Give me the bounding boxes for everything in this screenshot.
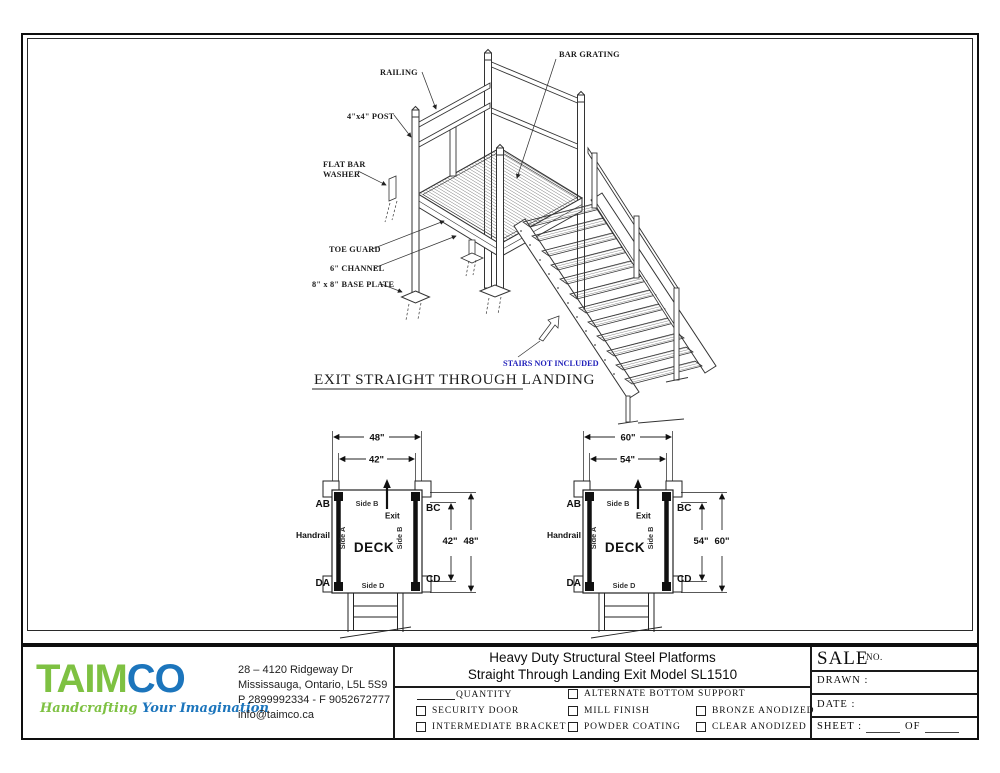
option-security-door: SECURITY DOOR [416,704,519,717]
exit-label: Exit [385,512,400,521]
company-logo: TAIMCO [36,658,185,700]
dim-inner-width: 42" [369,455,384,466]
dim-outer-height: 60" [714,536,729,547]
corner-bc: BC [677,503,691,514]
address-line: P 2899992334 - F 9052672777 [238,693,390,708]
checkbox-icon [568,722,578,732]
option-label: QUANTITY [456,690,512,700]
corner-bc: BC [426,503,440,514]
company-address: 28 – 4120 Ridgeway Dr Mississauga, Ontar… [238,663,390,723]
option-label: POWDER COATING [584,722,681,732]
label-railing: RAILING [380,68,418,77]
address-line: 28 – 4120 Ridgeway Dr [238,663,390,678]
checkbox-icon [568,689,578,699]
address-line: Mississauga, Ontario, L5L 5S9 [238,678,390,693]
of-label: OF [905,721,920,732]
handrail-label: Handrail [547,530,581,540]
option-label: SECURITY DOOR [432,706,519,716]
quantity-blank-line [417,690,455,700]
dim-inner-height: 42" [442,536,457,547]
sheet-label: SHEET : [817,721,862,732]
option-mill-finish: MILL FINISH [568,704,650,717]
option-alternate-bottom-support: ALTERNATE BOTTOM SUPPORT [568,687,745,700]
dim-inner-width: 54" [620,455,635,466]
sheet-number-blank [866,732,900,733]
sale-label: SALE [817,648,869,670]
sale-panel-divider [811,670,977,672]
base-plate [402,291,430,303]
railing-rails [419,83,490,127]
side-left-label: Side A [589,526,598,549]
option-quantity: QUANTITY [417,688,512,701]
option-label: CLEAR ANODIZED [712,722,807,732]
logo-tagline: Handcrafting Your Imagination [40,701,269,716]
label-toe-guard: TOE GUARD [329,245,381,254]
side-top-label: Side B [607,499,630,508]
email: info@taimco.ca [238,708,390,723]
flat-bar-washer [389,176,396,201]
dim-inner-height: 54" [693,536,708,547]
corner-da: DA [567,578,581,589]
sheet-title-line1: Heavy Duty Structural Steel Platforms [395,649,810,666]
label-bar-grating: BAR GRATING [559,50,620,59]
label-channel: 6" CHANNEL [330,264,385,273]
handrail-label: Handrail [296,530,330,540]
drawn-label: DRAWN : [817,675,868,686]
checkbox-icon [568,706,578,716]
option-powder-coating: POWDER COATING [568,720,681,733]
deck-label: DECK [605,540,645,555]
sale-no-label: NO. [866,652,883,662]
corner-da: DA [316,578,330,589]
option-bronze-anodized: BRONZE ANODIZED [696,704,814,717]
sheet-title-line2: Straight Through Landing Exit Model SL15… [395,666,810,683]
sheet-total-blank [925,732,959,733]
stair-tail [599,593,654,632]
label-flat-bar: FLAT BAR [323,160,366,169]
exit-label: Exit [636,512,651,521]
option-label: ALTERNATE BOTTOM SUPPORT [584,689,745,699]
checkbox-icon [416,722,426,732]
dim-outer-width: 60" [620,433,635,444]
date-label: DATE : [817,699,855,710]
stair-tail [348,593,403,632]
option-label: MILL FINISH [584,706,650,716]
checkbox-icon [696,722,706,732]
side-bottom-label: Side D [613,581,636,590]
option-intermediate-bracket: INTERMEDIATE BRACKET [416,720,566,733]
drawing-sheet: BAR GRATING RAILING 4"x4" POST FLAT BAR … [0,0,1000,773]
checkbox-icon [416,706,426,716]
sale-panel-divider [811,716,977,718]
side-left-label: Side A [338,526,347,549]
option-label: BRONZE ANODIZED [712,706,814,716]
side-right-label: Side B [395,527,404,550]
side-top-label: Side B [356,499,379,508]
dim-outer-height: 48" [463,536,478,547]
deck-plan-48: 48" 42" 42" 48" AB BC DA CD Handrail Sid… [290,425,500,655]
option-label: INTERMEDIATE BRACKET [432,722,566,732]
corner-ab: AB [567,499,581,510]
stairs-not-included-note: STAIRS NOT INCLUDED [503,359,599,368]
side-bottom-label: Side D [362,581,385,590]
label-base-plate: 8" x 8" BASE PLATE [312,280,395,289]
drawing-caption: EXIT STRAIGHT THROUGH LANDING [314,371,595,388]
corner-ab: AB [316,499,330,510]
sale-panel-divider [811,693,977,695]
open-arrow-icon [539,316,559,341]
deck-label: DECK [354,540,394,555]
corner-cd: CD [426,574,440,585]
corner-cd: CD [677,574,691,585]
isometric-drawing: BAR GRATING RAILING 4"x4" POST FLAT BAR … [280,30,800,440]
option-clear-anodized: CLEAR ANODIZED [696,720,807,733]
dim-outer-width: 48" [369,433,384,444]
deck-plan-60: 60" 54" 54" 60" AB BC DA CD Handrail Sid… [541,425,751,655]
label-washer: WASHER [323,170,361,179]
checkbox-icon [696,706,706,716]
sheet-title: Heavy Duty Structural Steel Platforms St… [395,649,810,683]
title-block-top-border [21,643,979,647]
side-right-label: Side B [646,527,655,550]
label-post: 4"x4" POST [347,112,395,121]
